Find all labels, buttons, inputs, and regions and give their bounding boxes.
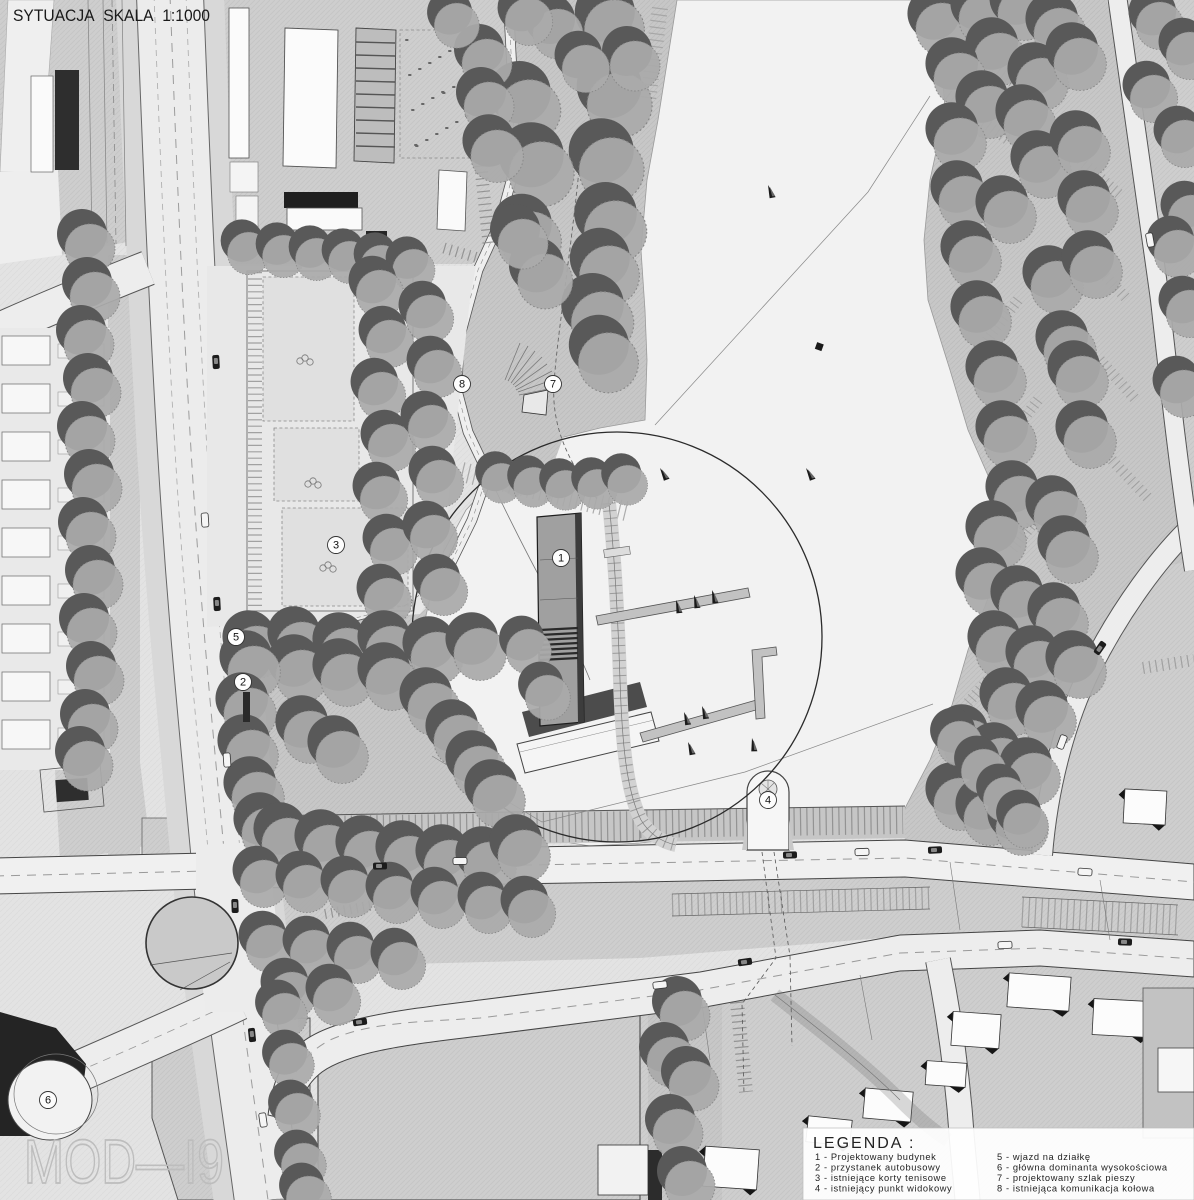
svg-text:2 - przystanek autobusowy: 2 - przystanek autobusowy xyxy=(815,1163,941,1173)
svg-text:3: 3 xyxy=(333,540,339,552)
svg-text:6 - główna dominanta wysokoś: 6 - główna dominanta wysokościowa xyxy=(997,1163,1168,1173)
svg-text:3 - istniejące korty tenisow: 3 - istniejące korty tenisowe xyxy=(815,1173,947,1183)
svg-text:1: 1 xyxy=(558,553,564,565)
svg-text:4: 4 xyxy=(765,795,771,807)
svg-text:7: 7 xyxy=(550,379,556,391)
svg-text:SYTUACJA SKALA 1:1000: SYTUACJA SKALA 1:1000 xyxy=(13,6,210,25)
svg-text:LEGENDA :: LEGENDA : xyxy=(813,1135,915,1152)
svg-text:8: 8 xyxy=(459,379,465,391)
svg-text:8 - istniejąca komunikacja k: 8 - istniejąca komunikacja kołowa xyxy=(997,1184,1155,1194)
svg-text:6: 6 xyxy=(45,1095,51,1107)
svg-text:5: 5 xyxy=(233,632,239,644)
svg-text:1 - Projektowany budynek: 1 - Projektowany budynek xyxy=(815,1152,936,1162)
svg-text:4 - istniejący punkt widokowy: 4 - istniejący punkt widokowy xyxy=(815,1184,952,1194)
svg-text:MOD—I9: MOD—I9 xyxy=(24,1128,224,1197)
svg-text:7 - projektowany szlak pieszy: 7 - projektowany szlak pieszy xyxy=(997,1173,1135,1183)
svg-text:2: 2 xyxy=(240,677,246,689)
svg-text:5 - wjazd na działkę: 5 - wjazd na działkę xyxy=(997,1152,1091,1162)
